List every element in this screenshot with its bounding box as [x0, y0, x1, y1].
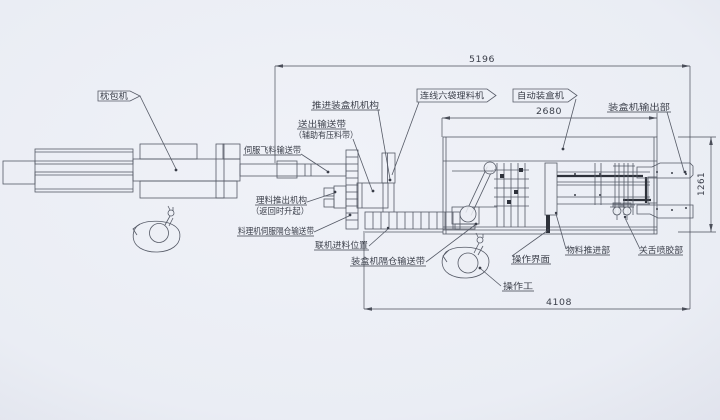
paper-background	[0, 0, 720, 420]
dimension-overall-length: 5196	[469, 55, 495, 65]
servo-fly-belt-label: 伺服飞料输送带	[244, 145, 301, 156]
operator-label: 操作工	[503, 281, 534, 292]
cartoner-output-label: 装盒机输出部	[608, 102, 671, 113]
outfeed-belt-label: 送出输送带	[298, 119, 347, 130]
material-pusher-label: 物料推进部	[566, 245, 611, 256]
pillow-packer-label: 枕包机	[100, 91, 129, 102]
tuck-glue-label: 关舌喷胶部	[639, 245, 684, 256]
operator-head	[458, 253, 478, 273]
sorter-pushout-label: 理料推出机构	[256, 195, 307, 206]
cartoner-label: 自动装盒机	[517, 91, 565, 102]
cartoner-compartment-belt-label: 装盒机隔仓输送带	[351, 256, 426, 267]
operator-head	[150, 224, 169, 243]
blueprint-canvas: 5196 2680 4108 1261 枕包机 连线六袋理料机 自动装盒	[0, 0, 720, 420]
sorter-pushout-note-label: （返回时升起）	[251, 206, 309, 217]
outfeed-belt-note-label: （辅助有压料带）	[294, 130, 358, 141]
blueprint-photo: 5196 2680 4108 1261 枕包机 连线六袋理料机 自动装盒	[0, 0, 720, 420]
dimension-cartoner-length: 2680	[536, 107, 562, 117]
hmi-label: 操作界面	[512, 254, 551, 265]
dimension-output-height: 1261	[697, 172, 707, 196]
sorter-servo-belt-label: 料理机伺服隔仓输送带	[238, 226, 314, 237]
dimension-line-length: 4108	[546, 298, 572, 308]
push-into-cartoner-label: 推进装盒机机构	[312, 100, 379, 111]
inline-feed-position-label: 联机进料位置	[315, 240, 369, 251]
sorter-label: 连线六袋理料机	[420, 91, 485, 102]
